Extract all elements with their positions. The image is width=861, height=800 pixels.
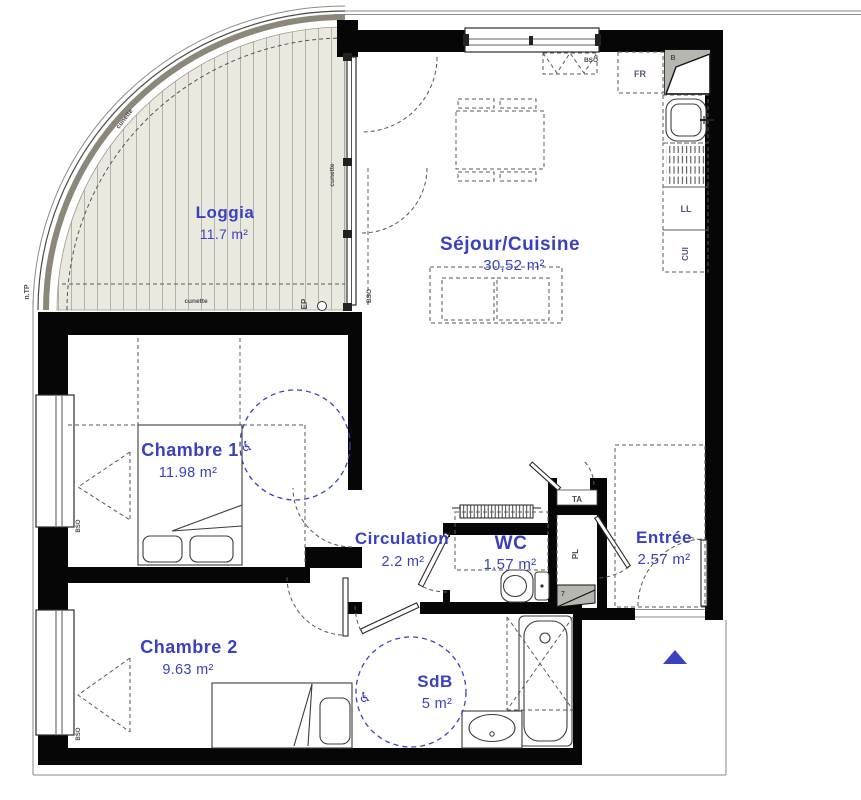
loggia-name: Loggia <box>196 203 255 222</box>
sofa <box>430 267 562 323</box>
chambre1-area: 11.98 m² <box>159 465 218 481</box>
window-sejour-north: BSO <box>463 28 601 74</box>
loggia-gutter-label-bottom: cunette <box>184 298 208 305</box>
room-sdb: ♿ SdB 5 m² <box>356 616 573 748</box>
dining-table <box>456 99 544 181</box>
washing-machine: LL <box>663 187 708 230</box>
sejour-name: Séjour/Cuisine <box>440 234 580 255</box>
duct-box: 7 <box>557 585 595 607</box>
accessibility-circle-chambre1 <box>240 390 350 500</box>
loggia-area: 11.7 m² <box>200 226 249 242</box>
sdb-door <box>355 603 419 634</box>
kitchen-units: FR B LL CUI <box>618 50 714 272</box>
kitchen-column-label: CUI <box>681 247 690 261</box>
sejour-area: 30,52 m² <box>483 257 545 274</box>
duct-label: 7 <box>561 591 565 598</box>
blind-top-label: BSO <box>584 57 598 64</box>
entrance-arrow-icon <box>663 650 687 664</box>
accessibility-circle-sdb <box>356 637 466 747</box>
rain-pipe-label: EP <box>300 298 309 309</box>
circulation-name: Circulation <box>355 529 449 548</box>
corner-unit: B <box>665 50 710 94</box>
room-chambre2: Chambre 2 9.63 m² <box>140 637 352 748</box>
loggia-door-arc-upper <box>362 57 437 132</box>
room-wc: WC 1.57 m² <box>484 533 549 602</box>
washing-machine-label: LL <box>681 204 692 214</box>
chambre2-area: 9.63 m² <box>162 662 213 678</box>
dish-rack <box>663 143 708 187</box>
wheelchair-icon-chambre1: ♿ <box>241 438 254 454</box>
washbasin <box>462 711 522 748</box>
floor-plan: cunette cunette cunette EP n.TP Loggia 1… <box>0 0 861 800</box>
room-entree: Entrée 2.57 m² <box>615 445 705 664</box>
bed-single <box>212 683 352 748</box>
loggia-door-arc-lower <box>362 168 427 233</box>
blind-chambre1-label: BSO <box>76 519 82 532</box>
blind-chambre2-label: BSO <box>76 727 82 740</box>
window-sejour-west: BSO <box>343 53 373 311</box>
sdb-area: 5 m² <box>422 696 452 712</box>
window-chambre1: BSO <box>36 395 130 533</box>
chambre2-name: Chambre 2 <box>140 637 238 657</box>
wheelchair-icon-sdb: ♿ <box>359 689 372 705</box>
room-chambre1: ♿ Chambre 1 11.98 m² <box>68 338 350 565</box>
circulation-area: 2.2 m² <box>382 554 425 570</box>
chambre2-door <box>287 577 348 636</box>
chambre1-name: Chambre 1 <box>141 440 239 460</box>
tp-label: n.TP <box>24 284 31 299</box>
rain-pipe-symbol <box>318 302 327 311</box>
corner-unit-label: B <box>670 55 675 62</box>
entree-name: Entrée <box>636 528 692 547</box>
sdb-name: SdB <box>417 672 453 691</box>
fridge: FR <box>618 52 663 93</box>
floor-plan-canvas: cunette cunette cunette EP n.TP Loggia 1… <box>0 0 861 800</box>
bathtub <box>519 616 572 746</box>
loggia-hatch-area <box>57 27 345 310</box>
window-chambre2: BSO <box>36 610 130 741</box>
chambre1-door-arc <box>293 488 352 547</box>
kitchen-column: CUI <box>663 230 708 272</box>
closet-label: PL <box>571 549 580 559</box>
fridge-label: FR <box>634 69 646 79</box>
wc-name: WC <box>495 533 528 554</box>
entree-zone <box>615 445 705 607</box>
entree-area: 2.57 m² <box>638 551 691 568</box>
room-loggia: cunette cunette cunette EP n.TP Loggia 1… <box>24 6 345 311</box>
wc-area: 1.57 m² <box>484 556 537 573</box>
electrical-panel-label: TA <box>572 495 582 504</box>
toilet <box>501 570 549 602</box>
loggia-gutter-label-right: cunette <box>329 163 336 187</box>
blind-sejour-label: BSO <box>366 289 373 303</box>
electrical-panel-flap <box>530 462 594 490</box>
